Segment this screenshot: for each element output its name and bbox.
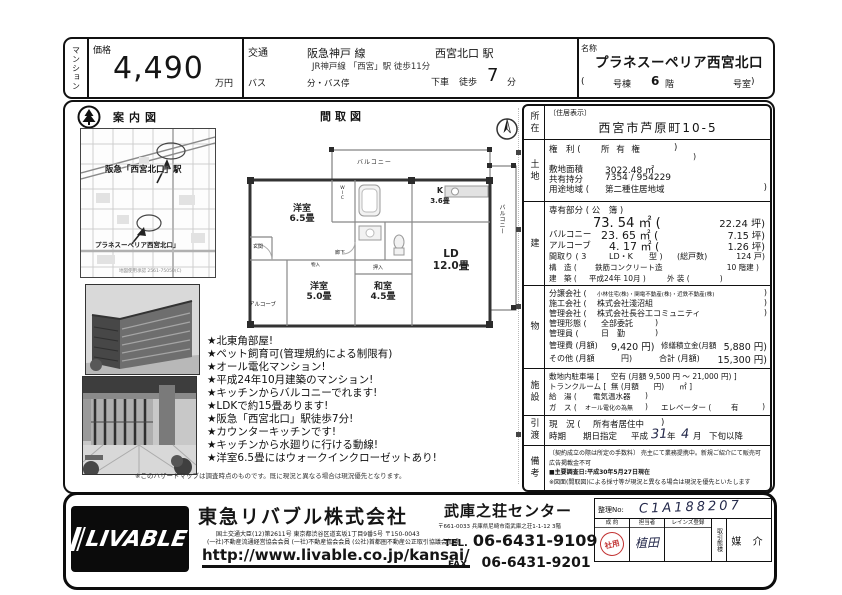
map-drawing [81,129,215,277]
unit-close: ) [751,77,755,87]
rail-sub: JR神戸線 「西宮」駅 徒歩11分 [312,60,430,72]
feature-item: ★キッチンからバルコニーでれます! [207,387,437,400]
company-name: 東急リバブル株式会社 [198,502,408,529]
washitsu-label: 和室4.5畳 [359,282,407,302]
remark-line: ※図面(間取図)による採寸等が現況と異なる場合は現況を優先といたします [549,478,766,488]
remark-line: 〔契約成立の際は所定の手数料〕 売主にて業務提携中。新規ご紹介にて販売可 [549,449,766,459]
price-label: 価格 [93,43,111,56]
row-location-label: 所在 [524,106,545,139]
wic-label: WIC [337,186,347,201]
feature-item: ★カウンターキッチンです! [207,426,437,439]
closet-label: 押入 [373,263,383,273]
staff-cell: 担当者 植田 [630,519,665,561]
feature-item: ★洋室6.5畳にはウォークインクローゼットあり! [207,452,437,465]
feature-item: ★阪急「西宮北口」駅徒歩7分! [207,413,437,426]
compass-icon [494,116,520,142]
feature-item: ★ペット飼育可(管理規約による制限有) [207,348,437,361]
feature-item: ★オール電化マンション! [207,361,437,374]
walk-unit: 分 [507,75,516,88]
map-title: 案内図 [113,109,161,125]
alcove-label: アルコーブ [249,300,276,310]
room1-label: 洋室6.5畳 [277,204,327,224]
map-credit: 地図使用承認 2561-75050(C) [119,268,181,274]
unit-floor-unit: 階 [665,77,674,90]
company-stamp: 社用 [597,529,626,558]
map-property-label: プラネスーペリア西宮北口」 [95,239,180,249]
row-facility: 施設 敷地内駐車場 [ 空有 (月額 9,500 円 〜 21,000 円) ]… [524,369,770,415]
area-map: 阪急「西宮北口」駅 プラネスーペリア西宮北口」 地図使用承認 2561-7505… [80,128,216,278]
map-station-label: 阪急「西宮北口」駅 [105,163,182,175]
office-name: 武庫之荘センター [444,500,572,521]
price-unit: 万円 [215,76,233,89]
office-tel: TEL. 06-6431-9109 [444,531,598,550]
staff-name: 植田 [630,533,665,551]
entrance-photo [82,376,197,475]
balcony-top-label: バルコニー [357,158,392,168]
row-remarks-label: 備考 [524,446,545,490]
unit-floor: 6 [651,74,659,88]
price-value: 4,490 [113,51,204,86]
row-management-label: 物 [524,286,545,369]
unit-room: 号室 [733,77,751,90]
balcony-right-label: バルコニー [496,204,506,234]
property-name: プラネスーペリア西宮北口 [595,51,763,71]
row-land: 土地 権 利 ( 所 有 権 ) ) 敷地面積 3022.48 ㎡ 共有持分 7… [524,140,770,202]
row-facility-label: 施設 [524,369,545,414]
feature-item: ★キッチンから水廻りに行ける動線! [207,439,437,452]
kitchen-label: K3.6畳 [425,186,455,206]
row-handover-label: 引渡 [524,416,545,445]
ref-no-label: 整理No: [598,505,624,515]
row-handover: 引渡 現 況 ( 所有者居住中 ) 時期 期日指定 平成 31 年 4 月 [524,416,770,446]
walk-minutes: 7 [487,65,498,86]
main-box: 案内図 [63,100,775,494]
category-label: マンション [71,46,82,91]
reins-cell: レインズ登録 [665,519,712,561]
ld-label: LD12.0畳 [423,248,479,272]
ref-no-value: C1A188207 [639,498,742,517]
bus-label: バス [248,76,266,89]
handwritten-month: 4 [681,426,690,441]
alight-label: 下車 [431,75,449,88]
livable-logo: LIVABLE [71,506,189,572]
office-fax: FAX. 06-6431-9201 [448,552,591,571]
address-value: 西宮市芦原町10-5 [549,119,767,136]
row-building: 建 専有部分 ( 公 簿 ) 73. 54 ㎡ ( 22.24 坪) バルコニー… [524,202,770,286]
address-tag: 〔住居表示〕 [549,108,767,118]
detail-table: 所在 〔住居表示〕 西宮市芦原町10-5 土地 権 利 ( 所 有 権 ) ) [522,104,772,492]
office-address: 〒661-0033 兵庫県尼崎市南武庫之荘1-1-12 3階 [438,522,561,530]
feature-item: ★LDKで約15畳あります! [207,400,437,413]
feature-note: ※このハザードマップは調査時点のものです。既に現況と異なる場合は現況優先となりま… [135,470,405,480]
transport-label: 交通 [248,44,268,59]
feature-list: ★北東角部屋! ★ペット飼育可(管理規約による制限有) ★オール電化マンション!… [207,335,437,465]
deal-type-label: 取引態様 [712,519,727,561]
floorplan-drawing [247,142,519,334]
feature-item: ★北東角部屋! [207,335,437,348]
property-flyer: マンション 価格 4,490 万円 交通 阪急神戸 線 西宮北口 駅 JR神戸線… [0,0,842,595]
remark-line: ■主要調査日:平成30年5月27日現在 [549,468,766,478]
feature-item: ★平成24年10月建築のマンション! [207,374,437,387]
record-table: 整理No: C1A188207 成 約 社用 担当者 植田 レインズ登録 取引態… [594,498,772,562]
row-building-label: 建 [524,202,545,285]
row-remarks: 備考 〔契約成立の際は所定の手数料〕 売主にて業務提携中。新規ご紹介にて販売可 … [524,446,770,490]
row-land-label: 土地 [524,140,545,201]
unit-open: ( [581,77,585,87]
deal-type-value: 媒 介 [727,519,771,561]
building-photo [85,284,200,375]
unit-building: 号棟 [613,77,631,90]
floorplan-title: 間取図 [320,108,365,124]
row-location: 所在 〔住居表示〕 西宮市芦原町10-5 [524,106,770,140]
storage-label: 物入 [311,261,320,271]
category-cell: マンション [65,39,89,97]
rail-station: 西宮北口 駅 [435,45,494,61]
livable-logo-text: LIVABLE [84,527,189,552]
handwritten-year: 31 [651,426,668,442]
tree-logo-icon [77,105,101,129]
company-url: http://www.livable.co.jp/kansai/ [202,546,470,568]
license-line-2: (一社)不動産流通経営協会会員 (一社)不動産協会会員 (公社)首都圏不動産公正… [207,537,459,546]
footer-box: LIVABLE 東急リバブル株式会社 国土交通大臣(12)第2611号 東京都渋… [63,492,777,590]
remark-line: 広告掲載金不可 [549,459,766,469]
bus-stop-label: 分・バス停 [307,77,350,89]
rail-line: 阪急神戸 線 [307,45,366,61]
header-box: マンション 価格 4,490 万円 交通 阪急神戸 線 西宮北口 駅 JR神戸線… [63,37,775,99]
room2-label: 洋室5.0畳 [295,282,343,302]
floorplan: バルコニー バルコニー 洋室6.5畳 K3.6畳 LD12.0畳 和室4.5畳 … [247,142,519,334]
seiyaku-cell: 成 約 社用 [595,519,630,561]
walk-label: 徒歩 [459,75,477,88]
hall-label: 廊下 [335,248,345,258]
entrance-label: 玄関 [253,242,263,252]
row-management: 物 分譲会社 ( 小林住宅(株)・関電不動産(株)・近鉄不動産(株) ) 施工会… [524,286,770,370]
